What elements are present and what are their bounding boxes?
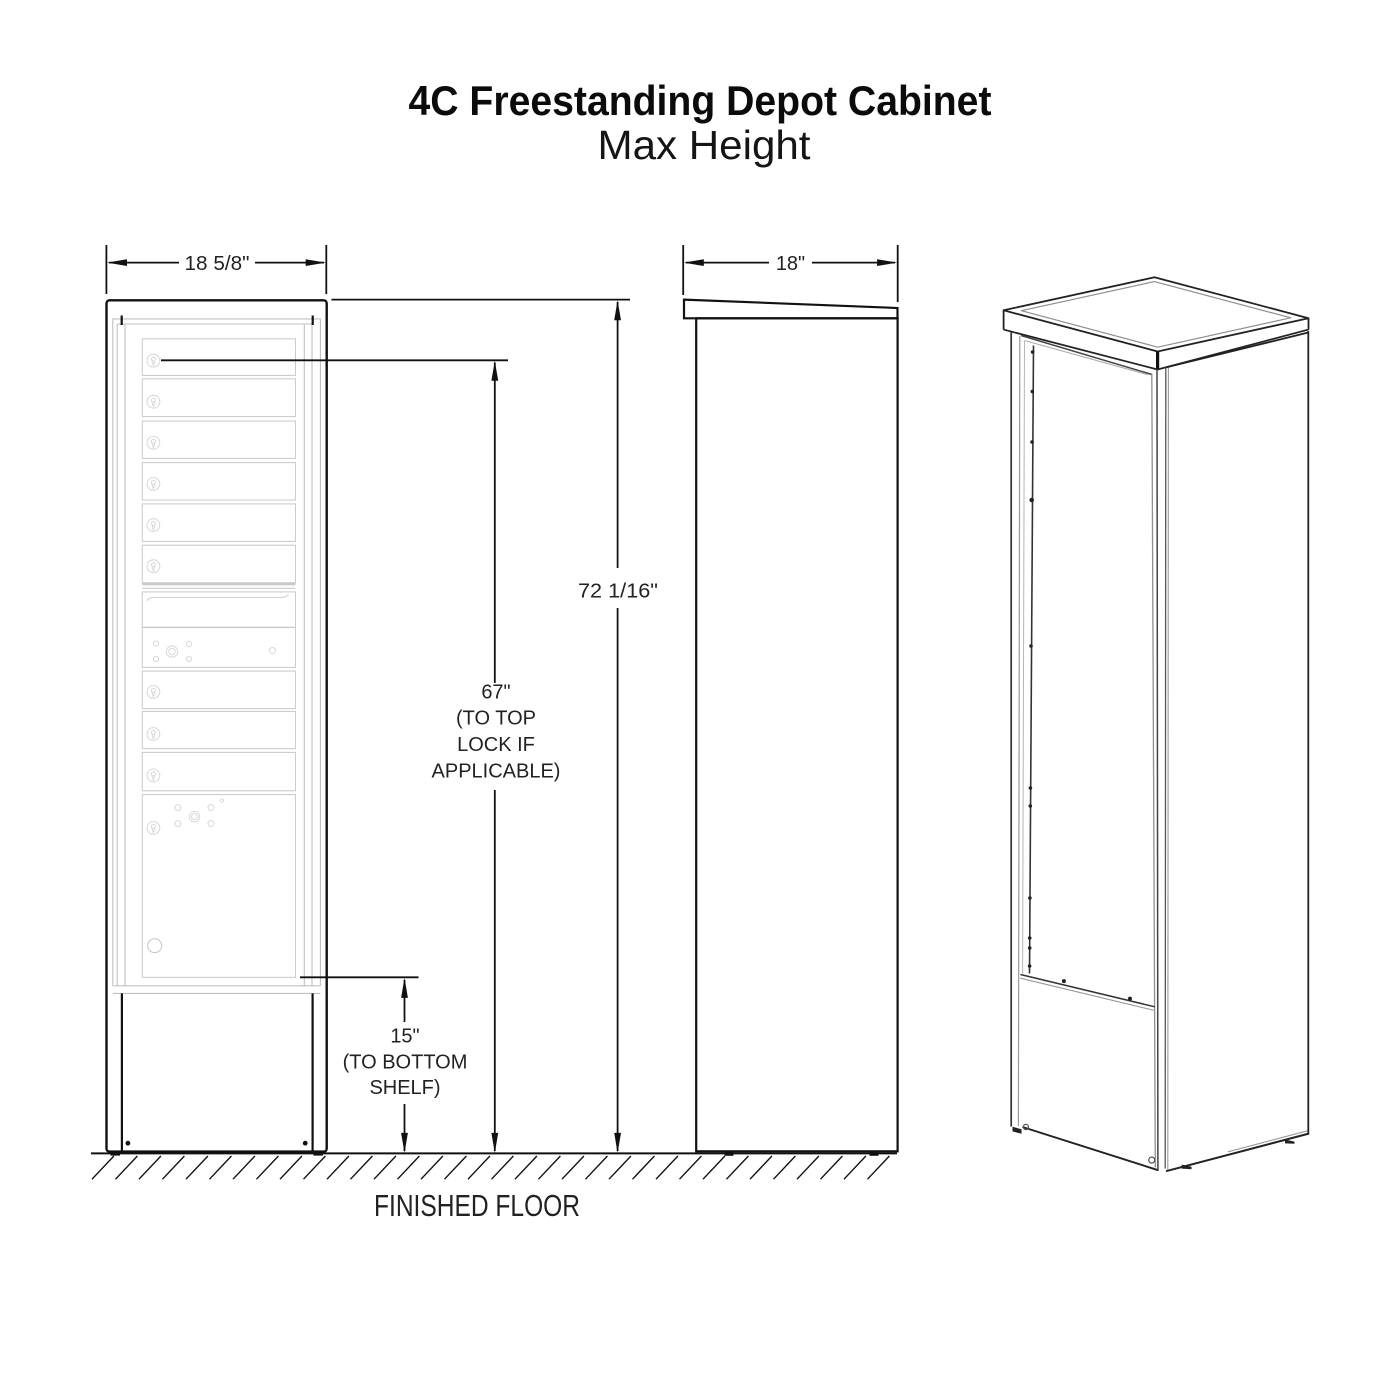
- svg-text:(TO TOP: (TO TOP: [456, 708, 536, 730]
- svg-text:Max Height: Max Height: [598, 122, 812, 168]
- svg-text:67": 67": [481, 681, 510, 703]
- svg-text:SHELF): SHELF): [369, 1077, 440, 1099]
- svg-text:15": 15": [390, 1026, 419, 1048]
- svg-text:18 5/8": 18 5/8": [185, 253, 250, 275]
- svg-text:(TO BOTTOM: (TO BOTTOM: [343, 1051, 468, 1073]
- svg-text:4C Freestanding Depot Cabinet: 4C Freestanding Depot Cabinet: [409, 77, 992, 124]
- svg-text:18": 18": [776, 253, 805, 275]
- svg-text:FINISHED FLOOR: FINISHED FLOOR: [374, 1189, 580, 1223]
- svg-text:LOCK IF: LOCK IF: [457, 734, 535, 756]
- svg-text:72 1/16": 72 1/16": [578, 581, 658, 603]
- svg-text:APPLICABLE): APPLICABLE): [432, 760, 561, 782]
